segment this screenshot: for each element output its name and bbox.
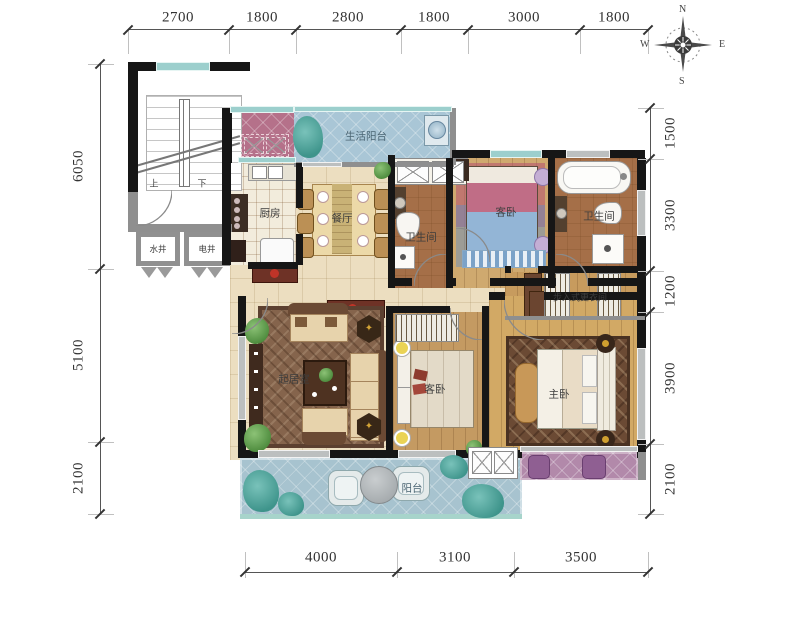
dim-top-4: 1800 [418, 10, 450, 27]
drain [604, 245, 611, 252]
dim-extension-line [229, 30, 230, 54]
dim-top-1: 2700 [162, 10, 194, 27]
balcony-door [258, 450, 330, 458]
plant [440, 455, 468, 479]
wall-segment [248, 262, 298, 269]
cabinet-x [494, 451, 514, 474]
dim-right-1: 1500 [663, 117, 680, 149]
sink-bowl [556, 208, 567, 219]
dim-line-bottom [245, 572, 648, 573]
dim-top-6: 1800 [598, 10, 630, 27]
window [230, 106, 294, 113]
wall-segment [386, 306, 393, 456]
tv-items [254, 352, 258, 424]
shaft-hatch [157, 267, 173, 278]
kitchen-sink [268, 166, 283, 179]
window [637, 348, 646, 440]
wall-segment [446, 278, 456, 286]
cup [312, 392, 317, 397]
pillow [582, 392, 597, 424]
dim-right-3: 1200 [663, 275, 680, 307]
table-plant [319, 368, 333, 382]
wall-segment [222, 108, 232, 163]
window [566, 150, 610, 158]
window [294, 106, 452, 112]
wall-segment [128, 62, 138, 192]
dim-extension-line [128, 30, 129, 54]
dim-bottom-2: 3100 [439, 550, 471, 567]
bathroom1-label: 卫生间 [405, 230, 437, 245]
door-arc [450, 308, 482, 340]
bathtub [557, 161, 631, 194]
kitchen-cabinet [230, 240, 246, 262]
shower [392, 246, 415, 269]
wall-segment [482, 306, 489, 456]
window [637, 190, 646, 236]
headboard [597, 347, 616, 431]
lamp [602, 340, 609, 347]
plant [462, 484, 504, 518]
balcony-chair [582, 455, 606, 479]
plate [357, 213, 369, 225]
burner [234, 216, 240, 222]
shaft-hatch [191, 267, 207, 278]
tub-inner [563, 166, 621, 189]
compass-star-icon [652, 14, 714, 76]
dining-chair [297, 213, 314, 234]
shaft-hatch [207, 267, 223, 278]
sink-counter [554, 196, 567, 232]
dim-top-3: 2800 [332, 10, 364, 27]
balcony-label: 阳台 [402, 481, 423, 496]
wall-segment [296, 163, 303, 208]
faucet [620, 173, 627, 180]
dim-left-1: 6050 [71, 150, 88, 182]
pillow [582, 355, 597, 387]
washing-machine [424, 115, 449, 146]
drain [400, 254, 406, 260]
wall-segment [393, 306, 450, 313]
pink-bay-table-x [244, 137, 264, 154]
dim-bottom-3: 3500 [565, 550, 597, 567]
plate [317, 191, 329, 203]
lamp [602, 436, 609, 443]
cup [332, 386, 337, 391]
sink-bowl [394, 197, 406, 209]
wall-segment [505, 266, 511, 273]
wall-segment [222, 163, 231, 265]
dim-extension-line [397, 552, 398, 578]
window [490, 150, 542, 158]
closet-label: 步入式更衣间 [553, 291, 607, 304]
sofa-seat [290, 314, 348, 342]
dim-extension-line [580, 30, 581, 54]
dim-extension-line [401, 30, 402, 54]
water-shaft-label: 水井 [149, 243, 166, 255]
cabinet-x [472, 451, 492, 474]
balcony-chair [528, 455, 550, 479]
plate [357, 235, 369, 247]
plate [357, 191, 369, 203]
dim-extension-line [245, 552, 246, 578]
dim-extension-line [514, 552, 515, 578]
dim-bottom-1: 4000 [305, 550, 337, 567]
wall-segment [638, 452, 646, 480]
wall-segment [588, 278, 645, 286]
service-balcony-label: 生活阳台 [345, 129, 387, 144]
wall-segment [490, 278, 556, 286]
flower [270, 269, 279, 278]
window [520, 446, 638, 452]
door-arc [136, 190, 172, 226]
bathroom2-label: 卫生间 [583, 209, 615, 224]
wall-segment [388, 278, 412, 286]
window [238, 336, 246, 420]
dim-top-2: 1800 [246, 10, 278, 27]
dim-right-2: 3300 [663, 199, 680, 231]
burner [234, 207, 240, 213]
bedside-lamp [394, 340, 410, 356]
dim-extension-line [648, 552, 649, 578]
compass-east-label: E [719, 39, 725, 50]
wicker-chair [328, 470, 364, 506]
floorplan-canvas: 2700 1800 2800 1800 3000 1800 6050 5100 … [0, 0, 800, 622]
door-arc [232, 298, 268, 334]
wall-segment [489, 292, 505, 300]
compass-south-label: S [679, 76, 685, 87]
nightstand [596, 334, 615, 353]
master-label: 主卧 [549, 387, 570, 402]
plate [317, 213, 329, 225]
burner [234, 198, 240, 204]
stone-table [360, 466, 398, 504]
stair-down-label: 下 [197, 177, 206, 190]
plate [317, 235, 329, 247]
dim-line-top [128, 29, 648, 30]
guest-top-label: 客卧 [496, 205, 517, 220]
plant [278, 492, 304, 516]
dim-extension-line [296, 30, 297, 54]
washing-machine-drum [428, 121, 446, 139]
shaft-hatch [141, 267, 157, 278]
stair-rail [179, 99, 190, 187]
stair-window [156, 62, 210, 71]
dim-extension-line [468, 30, 469, 54]
window-sill [238, 157, 296, 163]
burner [234, 223, 240, 229]
kitchen-sink [252, 166, 267, 179]
stair-up-label: 上 [149, 177, 158, 190]
guest-mid-label: 客卧 [425, 382, 446, 397]
wall-segment [452, 150, 645, 158]
dim-line-left [100, 64, 101, 514]
shower [592, 234, 624, 264]
electrical-shaft-label: 电井 [198, 243, 215, 255]
chair-cushion [334, 476, 358, 500]
armchair-back [302, 432, 346, 445]
kitchen-label: 厨房 [260, 206, 281, 221]
pillow [325, 317, 337, 327]
plant [293, 116, 323, 158]
dim-right-5: 2100 [663, 463, 680, 495]
living-room-label: 起居室 [278, 372, 310, 387]
dim-top-5: 3000 [508, 10, 540, 27]
dim-left-2: 5100 [71, 339, 88, 371]
dim-left-3: 2100 [71, 462, 88, 494]
compass-north-label: N [679, 4, 686, 15]
door-arc [456, 228, 490, 262]
pillow [295, 317, 307, 327]
compass-west-label: W [640, 39, 649, 50]
door-arc [556, 254, 588, 286]
bedside-lamp [394, 430, 410, 446]
stove [230, 194, 248, 232]
chaise-bench [515, 363, 539, 423]
plant [243, 470, 279, 512]
tv-console [249, 344, 263, 432]
door-arc [504, 300, 544, 340]
dim-right-4: 3900 [663, 362, 680, 394]
balcony-door [302, 162, 342, 167]
dining-label: 餐厅 [332, 211, 353, 226]
wall-segment [538, 266, 645, 273]
pink-bay-table-x [266, 137, 286, 154]
door-arc [414, 254, 446, 286]
wall-segment [446, 158, 453, 288]
wall-segment [296, 234, 303, 265]
